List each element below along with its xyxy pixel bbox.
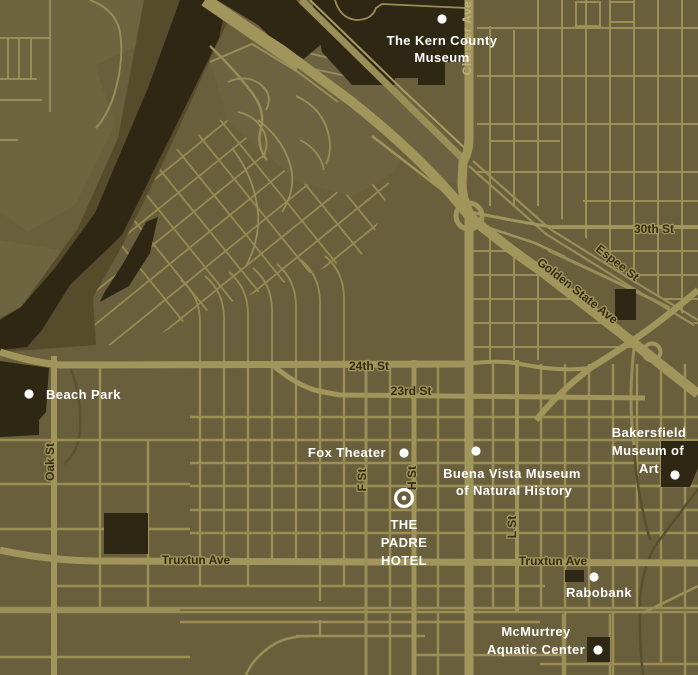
svg-text:of Natural History: of Natural History bbox=[456, 483, 573, 498]
svg-text:Truxtun Ave: Truxtun Ave bbox=[519, 554, 588, 568]
svg-text:Rabobank: Rabobank bbox=[566, 585, 632, 600]
svg-text:Oak St: Oak St bbox=[43, 443, 57, 481]
svg-text:Fox Theater: Fox Theater bbox=[308, 445, 386, 460]
svg-text:Bakersfield: Bakersfield bbox=[612, 425, 687, 440]
svg-text:F St: F St bbox=[355, 469, 369, 492]
svg-text:HOTEL: HOTEL bbox=[381, 553, 427, 568]
svg-text:PADRE: PADRE bbox=[381, 535, 428, 550]
svg-text:L St: L St bbox=[505, 516, 519, 538]
svg-text:Beach Park: Beach Park bbox=[46, 387, 121, 402]
svg-text:McMurtrey: McMurtrey bbox=[501, 624, 571, 639]
svg-text:Museum of: Museum of bbox=[612, 443, 684, 458]
svg-text:23rd St: 23rd St bbox=[391, 384, 432, 398]
svg-text:The Kern County: The Kern County bbox=[387, 33, 498, 48]
svg-text:Aquatic Center: Aquatic Center bbox=[487, 642, 585, 657]
svg-text:THE: THE bbox=[390, 517, 417, 532]
svg-text:Truxtun Ave: Truxtun Ave bbox=[162, 553, 231, 567]
svg-text:H St: H St bbox=[405, 466, 419, 490]
svg-text:Buena Vista Museum: Buena Vista Museum bbox=[443, 466, 581, 481]
svg-text:Museum: Museum bbox=[414, 50, 469, 65]
svg-text:24th St: 24th St bbox=[349, 359, 389, 373]
svg-text:30th St: 30th St bbox=[634, 222, 674, 236]
svg-text:Art: Art bbox=[639, 461, 659, 476]
